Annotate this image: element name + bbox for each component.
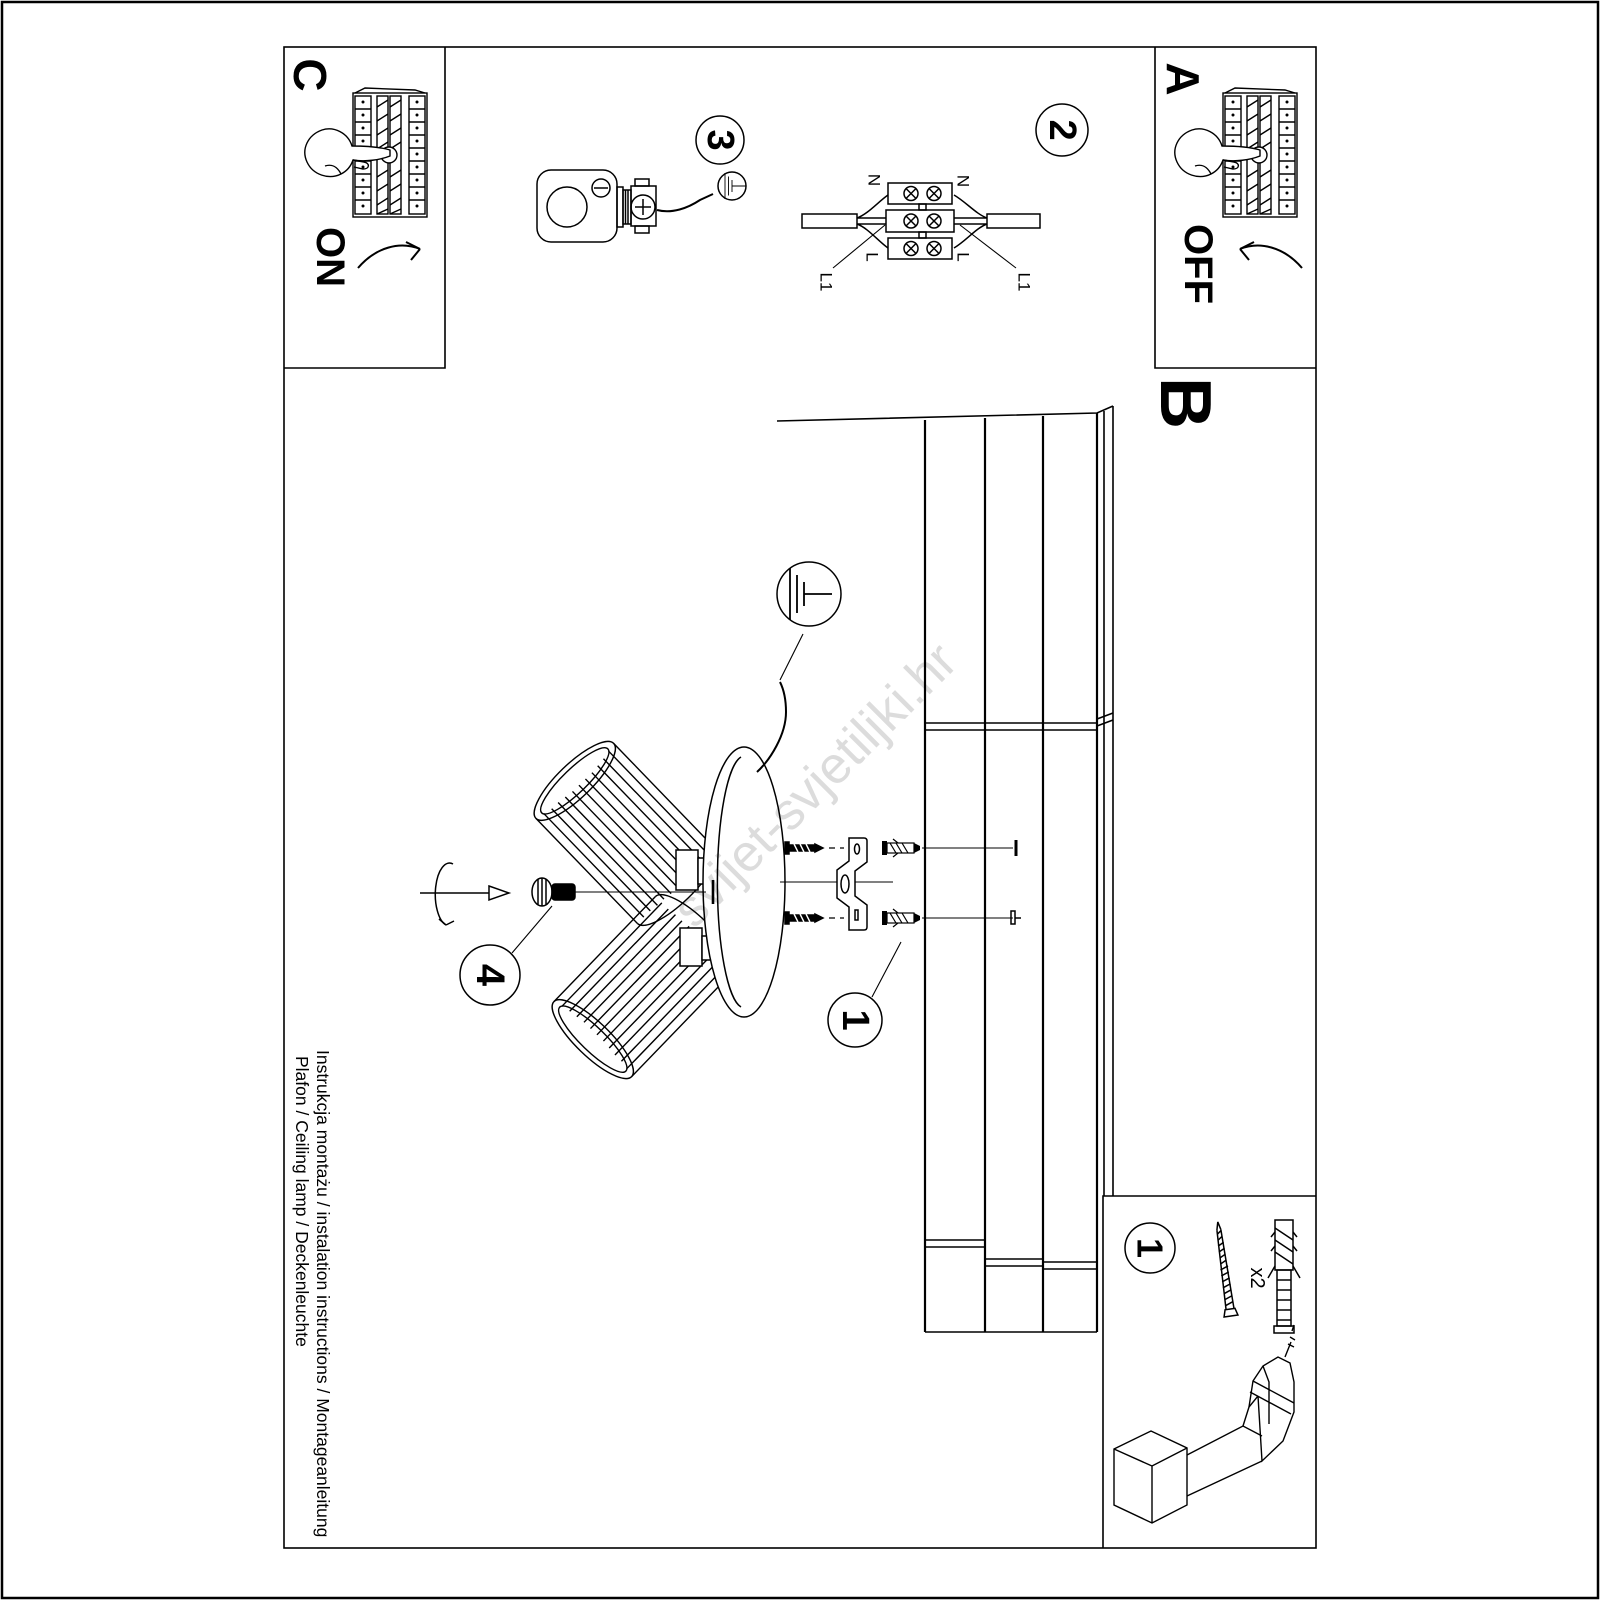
panel-b-label: B (1145, 377, 1225, 429)
wiring-label-l1-right: L1 (1015, 273, 1034, 292)
step4-number: 4 (468, 964, 512, 987)
wiring-label-l1-left-leader: L (954, 252, 973, 261)
step1-number: 1 (834, 1009, 876, 1030)
parts-step-number: 1 (1130, 1238, 1171, 1258)
panel-c-label: C (284, 58, 336, 91)
panel-a-label: A (1157, 62, 1209, 95)
footer-line1: Instrukcja montażu / instalation instruc… (313, 1050, 333, 1537)
instruction-sheet: C ON A OFF B 3 2 4 1 1 N N L L L1 L1 x2 … (0, 0, 1600, 1600)
panel-a-state: OFF (1176, 224, 1220, 304)
wiring-label-l1-left: L1 (817, 273, 836, 292)
wiring-label-l-left: L (863, 252, 882, 261)
footer-line2: Plafon / Ceiling lamp / Deckenleuchte (292, 1056, 312, 1347)
instruction-drawing: C ON A OFF B 3 2 4 1 1 N N L L L1 L1 x2 … (0, 0, 1600, 1600)
step3-number: 3 (699, 129, 741, 150)
wiring-label-n-left: N (865, 174, 884, 186)
anchor-quantity-label: x2 (1246, 1267, 1268, 1288)
step2-number: 2 (1041, 119, 1083, 140)
panel-c-state: ON (308, 227, 352, 287)
wiring-label-n-right: N (954, 175, 973, 187)
